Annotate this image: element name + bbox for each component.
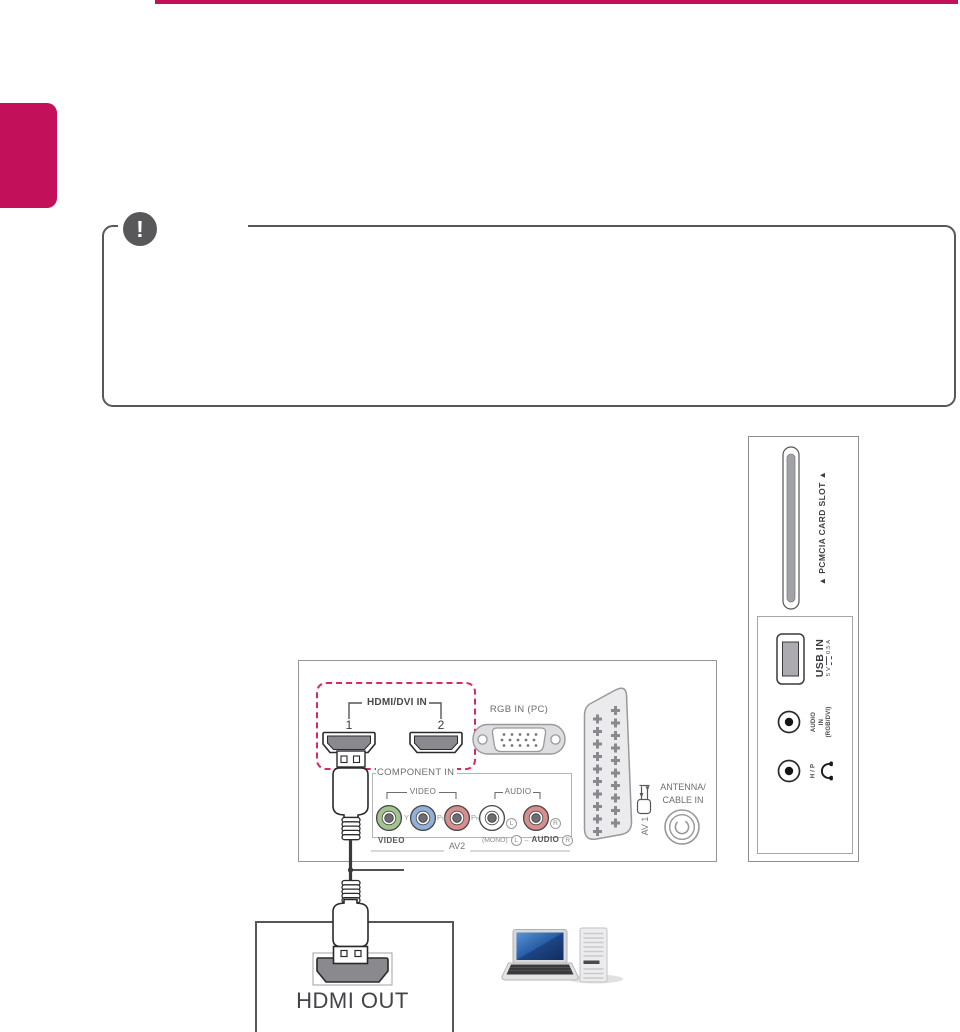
antenna-label-line1: ANTENNA/ bbox=[652, 783, 714, 793]
hdmi-port-2-number: 2 bbox=[433, 719, 449, 732]
component-in-box bbox=[372, 773, 572, 838]
usb-in-text: USB IN bbox=[814, 639, 826, 678]
hdmi-out-label: HDMI OUT bbox=[255, 989, 450, 1013]
hdmi-highlight-dashed-box bbox=[316, 682, 476, 770]
jack-pr-label: PR bbox=[471, 814, 479, 822]
chapter-side-tab bbox=[0, 103, 57, 208]
jack-y-label: Y bbox=[404, 814, 409, 822]
audio-in-rgb-dvi-label: AUDIO IN (RGB/DVI) bbox=[811, 707, 834, 738]
component-video-label: VIDEO bbox=[407, 788, 439, 797]
av1-label: AV 1 bbox=[640, 817, 650, 836]
cable-callout-line bbox=[348, 867, 404, 872]
tv-side-panel-inner-box bbox=[757, 616, 853, 854]
av2-audio-word: AUDIO bbox=[531, 836, 559, 845]
dc-voltage-icon bbox=[826, 656, 832, 665]
antenna-label-line2: CABLE IN bbox=[652, 796, 714, 806]
hdmi-out-device-box bbox=[255, 921, 454, 1032]
top-rule bbox=[155, 0, 958, 4]
note-exclamation-icon: ! bbox=[123, 212, 157, 246]
hp-label: H / P bbox=[810, 764, 818, 778]
note-box bbox=[102, 225, 956, 407]
av2-label: AV2 bbox=[444, 842, 470, 852]
rgb-in-pc-label: RGB IN (PC) bbox=[479, 705, 559, 715]
usb-in-label: USB IN 5 V 0.5 A bbox=[814, 639, 832, 678]
hdmi-dvi-in-label: HDMI/DVI IN bbox=[363, 697, 431, 708]
av2-audio-labels: (MONO) L – AUDIO R bbox=[482, 835, 573, 846]
desktop-tower-icon bbox=[580, 928, 607, 982]
av2-right-circle: R bbox=[562, 835, 573, 846]
av2-dash: – bbox=[525, 837, 529, 844]
mono-label: (MONO) bbox=[482, 837, 508, 844]
component-audio-label: AUDIO bbox=[503, 788, 533, 797]
manual-page: ! bbox=[0, 0, 960, 1032]
jack-pb-label: PB bbox=[437, 814, 445, 822]
av2-left-circle: L bbox=[511, 835, 522, 846]
pcmcia-card-slot-label: ▲ PCMCIA CARD SLOT ▲ bbox=[817, 471, 827, 586]
usb-spec-text: 5 V 0.5 A bbox=[826, 639, 832, 678]
hdmi-port-1-number: 1 bbox=[341, 719, 357, 732]
laptop-icon bbox=[502, 930, 623, 984]
component-in-label: COMPONENT IN bbox=[376, 768, 457, 778]
av2-video-label: VIDEO bbox=[378, 837, 405, 846]
jack-right-label: R bbox=[550, 812, 561, 830]
jack-left-label: L bbox=[506, 812, 517, 830]
